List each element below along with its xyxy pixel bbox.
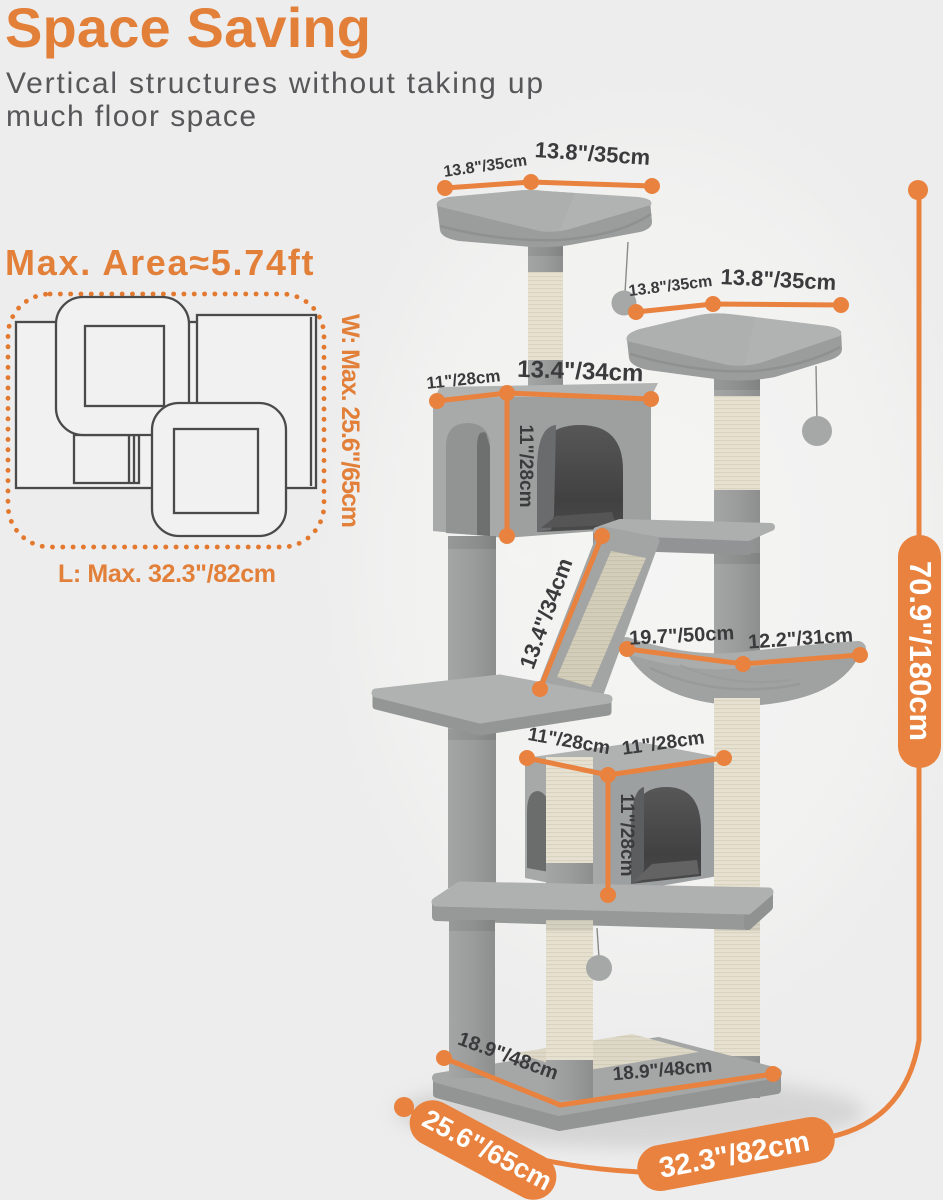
- svg-text:W: Max. 25.6"/65cm: W: Max. 25.6"/65cm: [336, 314, 364, 528]
- svg-text:11"/28cm: 11"/28cm: [616, 794, 637, 877]
- svg-text:Vertical structures without ta: Vertical structures without taking up: [6, 67, 543, 100]
- svg-text:L: Max. 32.3"/82cm: L: Max. 32.3"/82cm: [58, 560, 276, 588]
- svg-text:11"/28cm: 11"/28cm: [515, 425, 536, 508]
- svg-text:13.4"/34cm: 13.4"/34cm: [517, 356, 644, 387]
- svg-text:Max. Area≈5.74ft: Max. Area≈5.74ft: [5, 242, 314, 283]
- svg-text:much floor space: much floor space: [6, 100, 256, 133]
- svg-text:Space Saving: Space Saving: [5, 0, 371, 59]
- svg-text:70.9"/180cm: 70.9"/180cm: [903, 561, 938, 741]
